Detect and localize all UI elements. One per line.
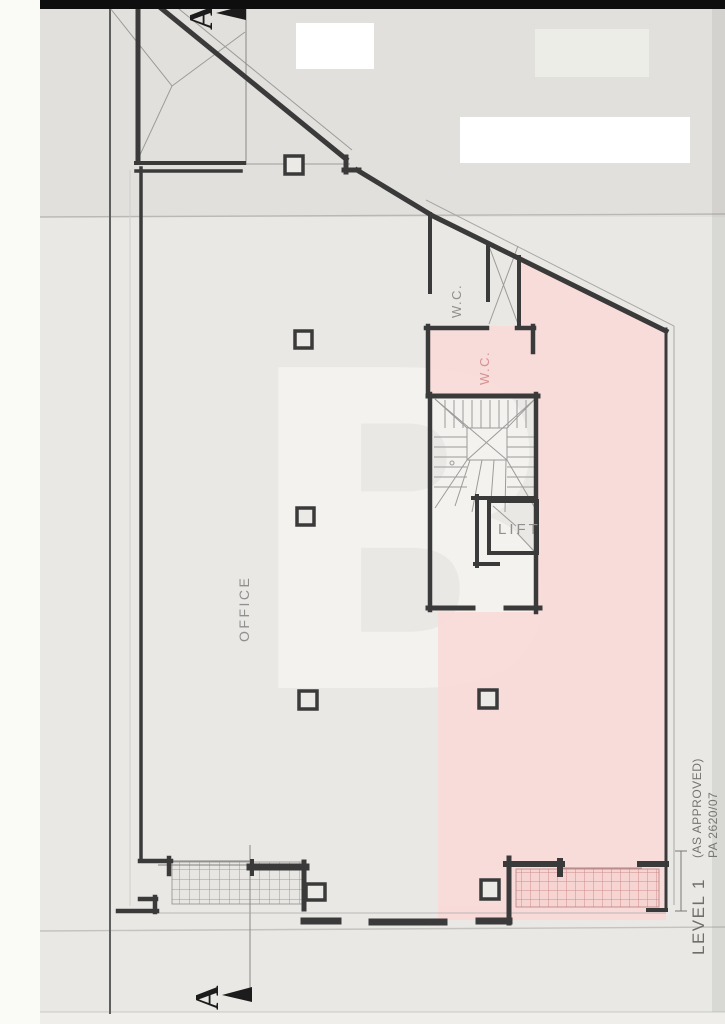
scanner-edge-strip [0,0,42,1024]
lift-label: LIFT [498,521,541,538]
column-3 [297,508,314,525]
shopfront-hatch-right-pink [516,869,659,907]
scan-edge-top-band [40,0,725,9]
column-6 [481,880,499,899]
column-1 [285,156,303,174]
floor-plan-svg: B [0,0,725,1024]
reference-label: PA 2620/07 [706,792,720,858]
column-5 [479,690,497,708]
faded-patch-top-right [535,29,649,77]
column-4 [299,691,317,709]
office-label: OFFICE [236,576,252,642]
paper-bottom-strip [40,1012,725,1024]
entrance-pier-block [306,884,325,900]
section-marker-bottom-label: A [189,985,226,1010]
whiteout-patch-top-left [296,23,374,69]
whiteout-patch-top-right [460,117,690,163]
wc-upper-label: W.C. [449,284,464,318]
scanned-floor-plan-page: B [0,0,725,1024]
wc-lower-label: W.C. [477,351,492,385]
paper-right-shade [712,8,725,1016]
column-2 [295,331,312,348]
status-label: (AS APPROVED) [690,758,704,858]
level-label: LEVEL 1 [689,878,708,955]
